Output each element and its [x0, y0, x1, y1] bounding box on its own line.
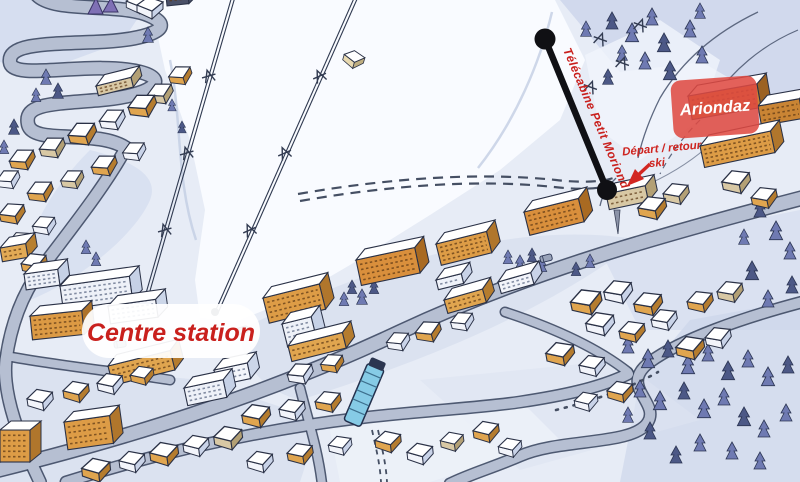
resort-map-svg: Télécabine Petit Moriond Ariondaz Départ… [0, 0, 800, 482]
gondola-bottom-terminal [597, 180, 617, 200]
label-ski: ski [648, 157, 666, 170]
centre-station-label: Centre station [82, 304, 260, 358]
label-centre-station: Centre station [87, 319, 255, 347]
gondola-top-terminal [535, 29, 556, 50]
ski-resort-map: Télécabine Petit Moriond Ariondaz Départ… [0, 0, 800, 482]
ariondaz-label: Ariondaz [670, 75, 760, 139]
apartment-block-building [0, 421, 41, 462]
